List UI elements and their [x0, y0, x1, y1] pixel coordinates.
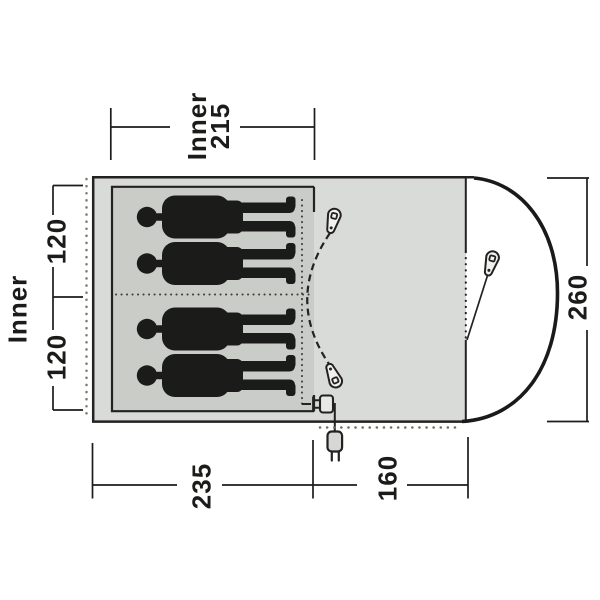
label-inner-depth-lower: 120 [46, 334, 69, 380]
label-inner-width-value: 215 [209, 92, 232, 161]
front-canopy-area [462, 178, 558, 422]
label-inner-length: 235 [191, 463, 214, 509]
label-porch-length: 160 [377, 455, 400, 501]
floorplan-drawing [0, 0, 600, 600]
dimension-bottom-lengths [93, 437, 469, 499]
tent-floorplan-diagram: Inner 215 Inner 120 120 235 160 260 [0, 0, 600, 600]
label-inner-depth-title: Inner [7, 275, 30, 344]
label-inner-width: Inner 215 [186, 92, 232, 161]
label-inner-depth-upper: 120 [46, 218, 69, 264]
label-total-height: 260 [567, 274, 590, 320]
